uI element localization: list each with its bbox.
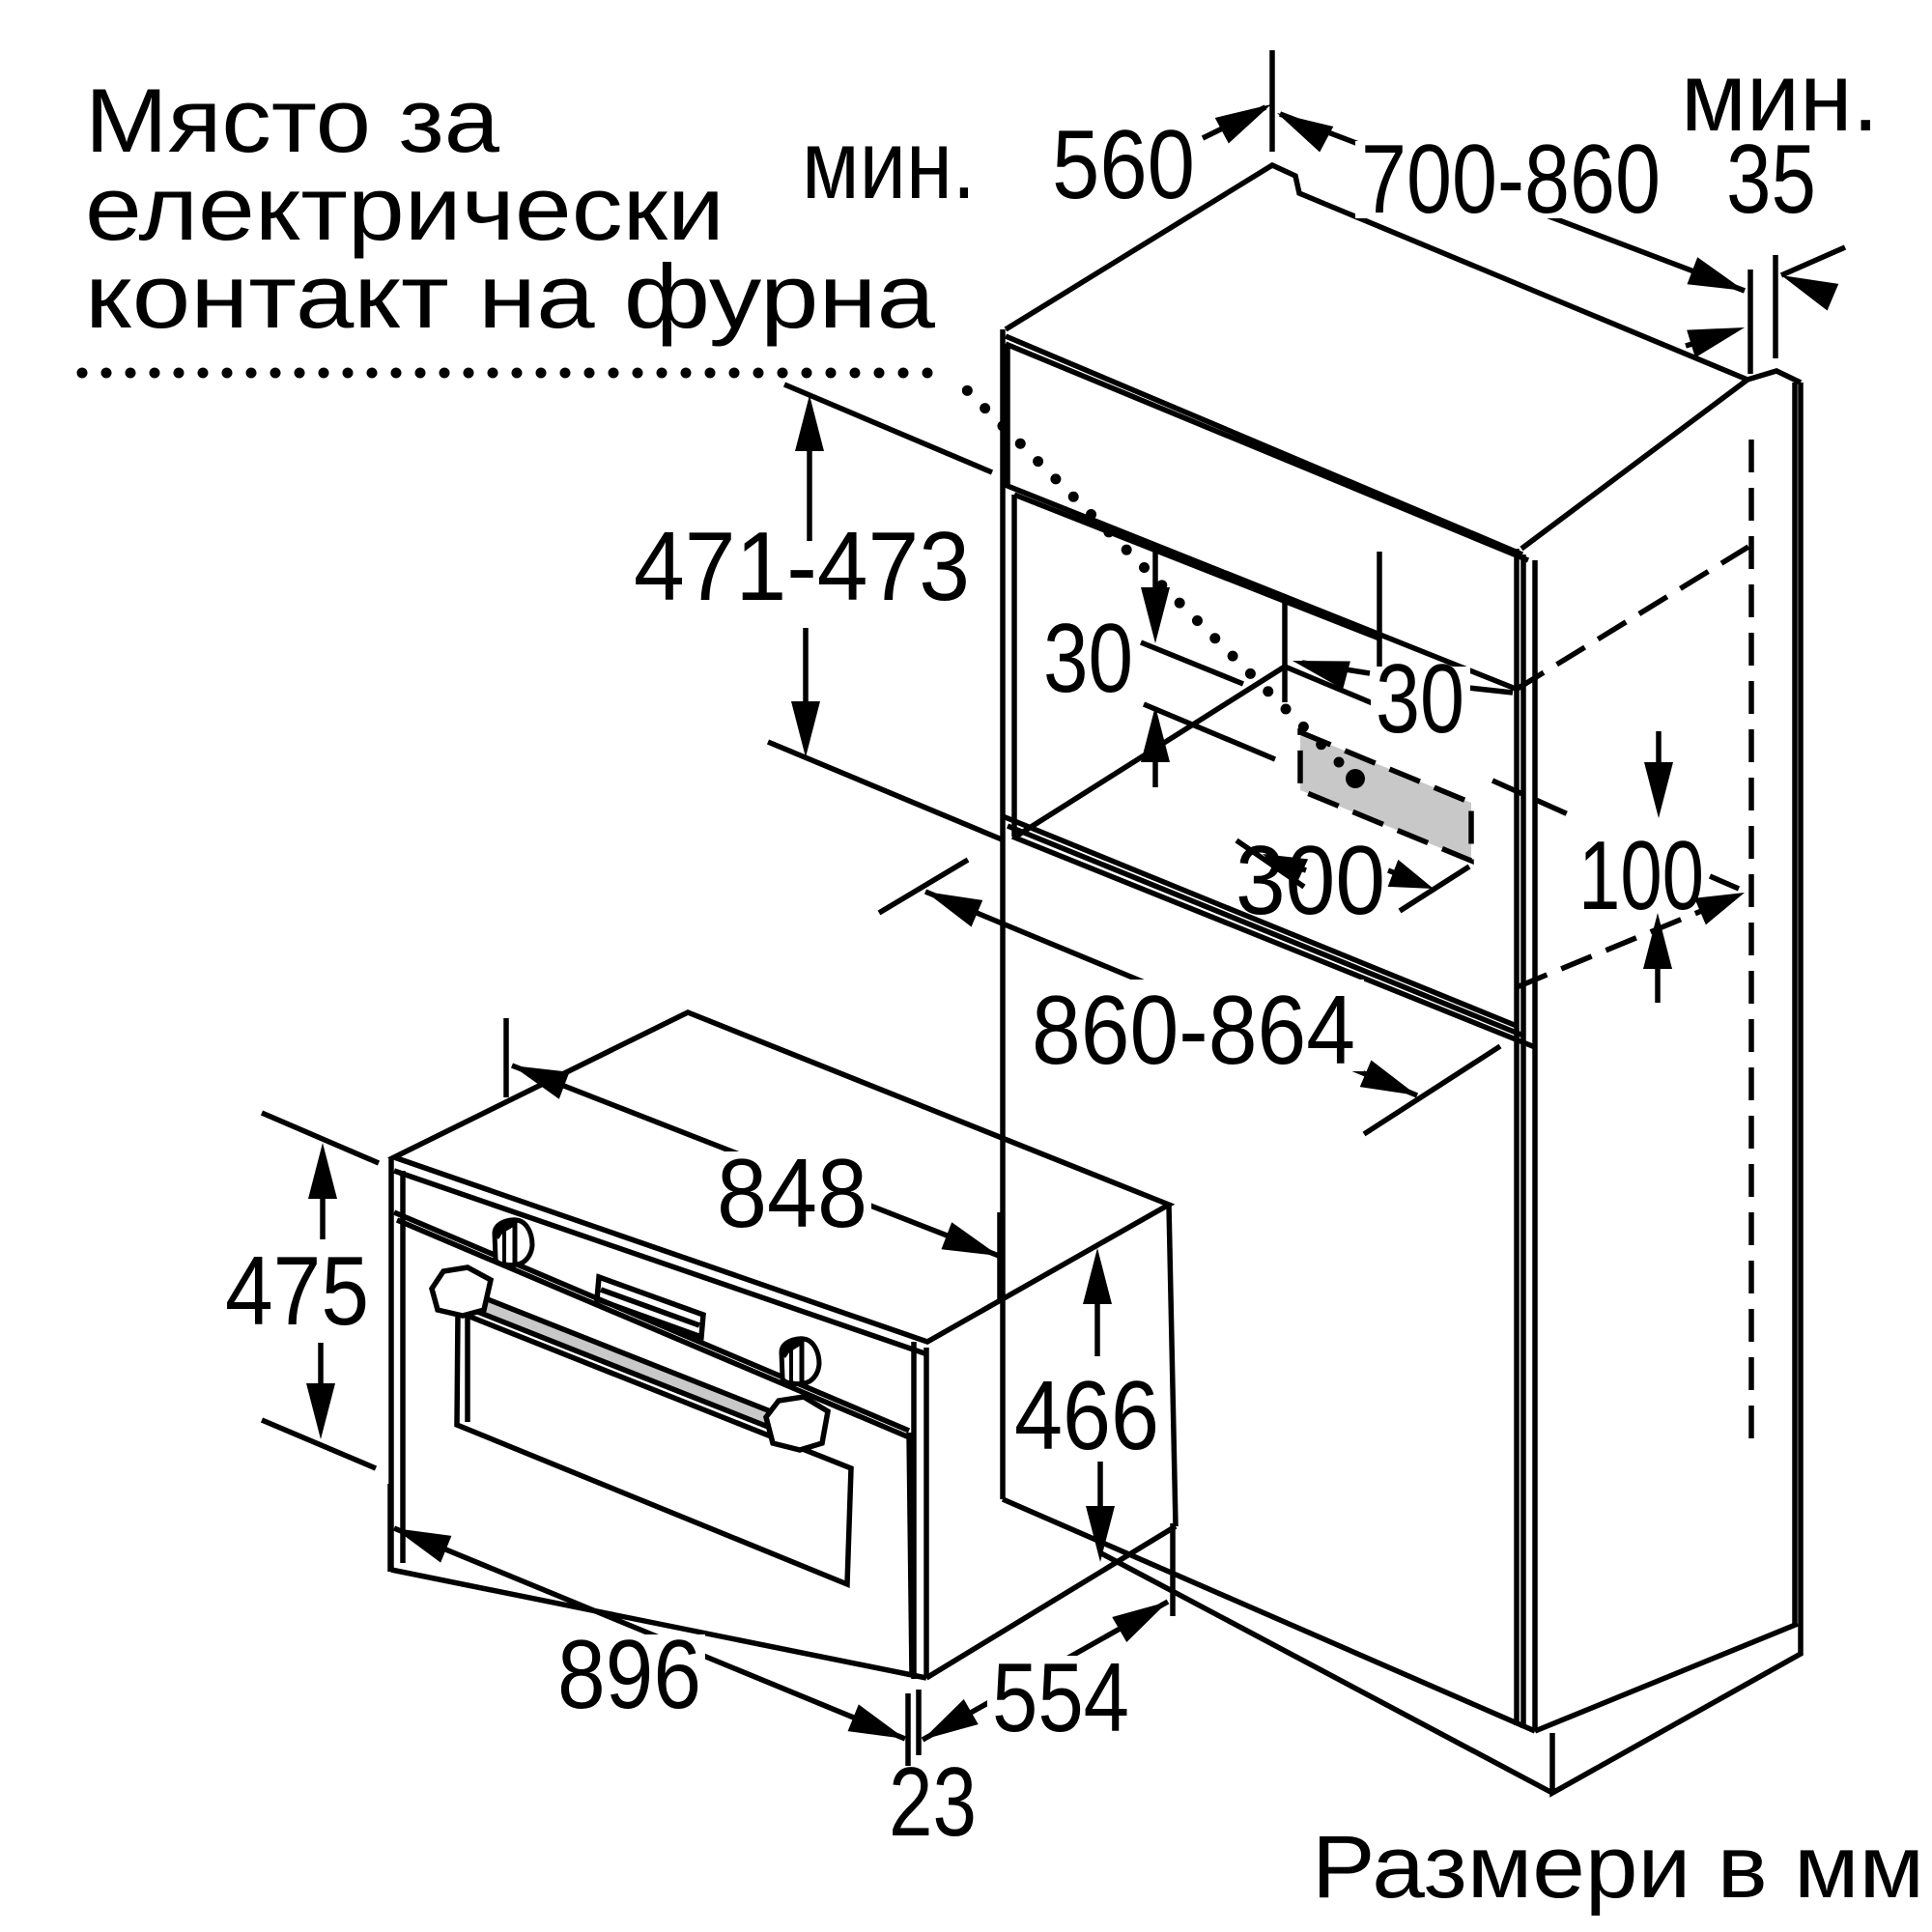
svg-text:30: 30 bbox=[1376, 645, 1464, 753]
svg-text:554: 554 bbox=[992, 1644, 1129, 1752]
svg-text:електрически: електрически bbox=[85, 157, 724, 259]
svg-text:23: 23 bbox=[889, 1748, 977, 1857]
svg-text:896: 896 bbox=[557, 1621, 701, 1729]
svg-text:Място за: Място за bbox=[85, 70, 500, 171]
svg-text:560: 560 bbox=[1052, 111, 1195, 219]
svg-text:475: 475 bbox=[225, 1237, 369, 1346]
svg-text:35: 35 bbox=[1726, 126, 1816, 234]
svg-text:471-473: 471-473 bbox=[634, 513, 970, 621]
svg-text:контакт на фурна: контакт на фурна bbox=[85, 245, 936, 347]
svg-text:848: 848 bbox=[717, 1140, 867, 1248]
svg-text:700-860: 700-860 bbox=[1361, 126, 1661, 234]
svg-text:мин.: мин. bbox=[802, 111, 976, 219]
svg-text:860-864: 860-864 bbox=[1032, 977, 1355, 1085]
svg-text:466: 466 bbox=[1014, 1362, 1159, 1470]
svg-text:30: 30 bbox=[1043, 605, 1133, 713]
svg-text:300: 300 bbox=[1236, 827, 1385, 935]
svg-text:Размери в мм: Размери в мм bbox=[1312, 1818, 1924, 1917]
svg-text:100: 100 bbox=[1578, 822, 1704, 930]
